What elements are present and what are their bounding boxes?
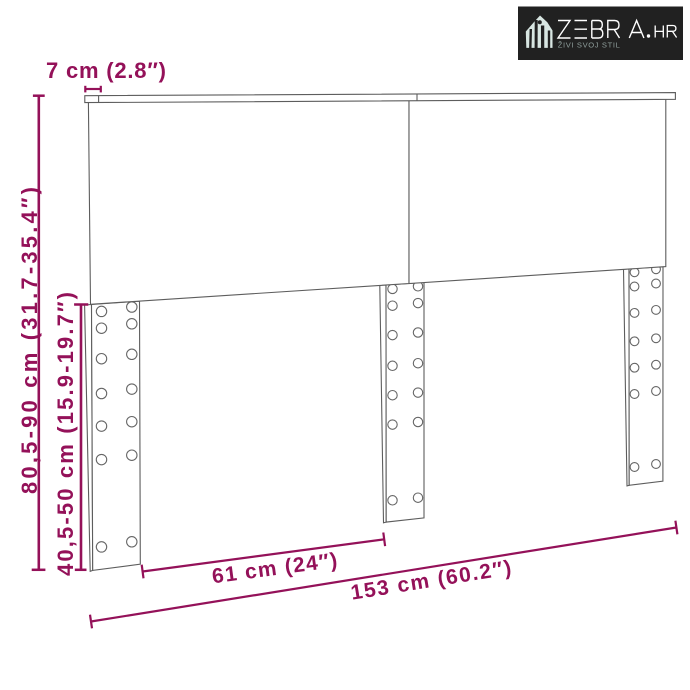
svg-text:80,5-90 cm (31.7-35.4″): 80,5-90 cm (31.7-35.4″) bbox=[17, 187, 42, 494]
svg-text:40,5-50 cm (15.9-19.7″): 40,5-50 cm (15.9-19.7″) bbox=[53, 292, 78, 576]
svg-text:7 cm (2.8″): 7 cm (2.8″) bbox=[46, 58, 166, 83]
svg-text:ŽIVI SVOJ STIL: ŽIVI SVOJ STIL bbox=[558, 40, 620, 49]
svg-text:153 cm (60.2″): 153 cm (60.2″) bbox=[349, 556, 513, 604]
